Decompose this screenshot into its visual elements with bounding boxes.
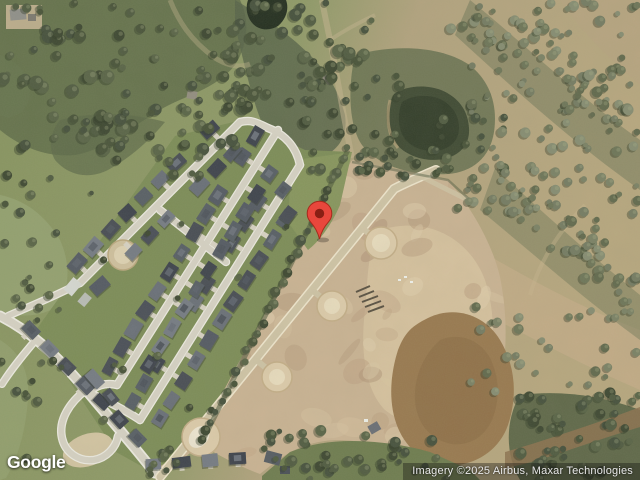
satellite-imagery <box>0 0 640 480</box>
pin-inner-dot <box>315 209 324 218</box>
google-logo[interactable]: Google <box>7 452 65 473</box>
imagery-attribution: Imagery ©2025 Airbus, Maxar Technologies <box>403 463 640 480</box>
satellite-map[interactable]: Google Imagery ©2025 Airbus, Maxar Techn… <box>0 0 640 480</box>
pin-shadow <box>317 238 329 243</box>
